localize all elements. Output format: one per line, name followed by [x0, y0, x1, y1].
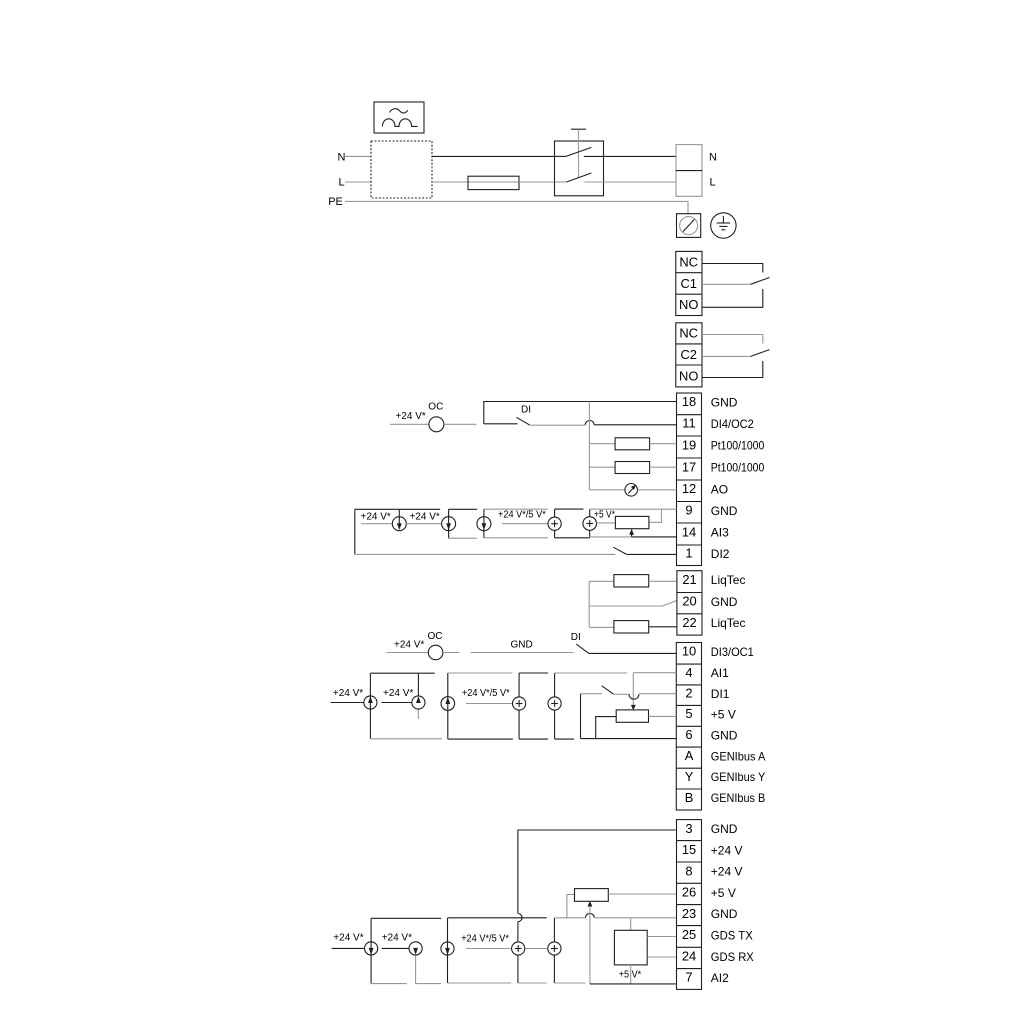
svg-text:10: 10 — [682, 644, 696, 659]
svg-text:9: 9 — [685, 503, 692, 518]
svg-text:PE: PE — [328, 196, 343, 208]
svg-text:Pt100/1000: Pt100/1000 — [711, 439, 765, 453]
svg-text:+24 V*: +24 V* — [361, 512, 391, 523]
svg-text:26: 26 — [682, 885, 696, 900]
svg-text:AI2: AI2 — [711, 971, 729, 985]
svg-text:11: 11 — [682, 416, 695, 431]
svg-text:OC: OC — [428, 631, 443, 642]
svg-text:GDS RX: GDS RX — [711, 950, 754, 964]
svg-text:L: L — [710, 177, 716, 189]
svg-text:AI1: AI1 — [711, 666, 729, 680]
svg-text:N: N — [338, 151, 346, 163]
svg-text:24: 24 — [682, 949, 696, 964]
svg-text:C2: C2 — [680, 347, 696, 362]
svg-text:GDS TX: GDS TX — [711, 929, 753, 943]
svg-text:18: 18 — [682, 394, 696, 409]
svg-text:NC: NC — [679, 254, 698, 269]
svg-text:GENIbus B: GENIbus B — [711, 791, 766, 805]
svg-text:1: 1 — [685, 546, 692, 561]
svg-text:+5 V*: +5 V* — [619, 970, 642, 981]
svg-text:GND: GND — [711, 504, 738, 518]
svg-text:+24 V*/5 V*: +24 V*/5 V* — [462, 688, 510, 699]
svg-text:19: 19 — [682, 437, 696, 452]
svg-text:+24 V*: +24 V* — [396, 411, 426, 422]
svg-text:25: 25 — [682, 927, 696, 942]
svg-text:GENIbus A: GENIbus A — [711, 749, 766, 763]
svg-text:+24 V: +24 V — [711, 843, 743, 857]
svg-text:+24 V*/5 V*: +24 V*/5 V* — [461, 933, 509, 944]
svg-text:NC: NC — [679, 326, 698, 341]
svg-text:B: B — [685, 790, 694, 805]
svg-text:23: 23 — [682, 906, 696, 921]
svg-text:GND: GND — [711, 396, 738, 410]
svg-text:+24 V: +24 V — [711, 865, 743, 879]
svg-text:AI3: AI3 — [711, 526, 729, 540]
svg-text:8: 8 — [685, 863, 692, 878]
svg-text:GND: GND — [711, 595, 738, 609]
svg-text:6: 6 — [685, 727, 692, 742]
svg-text:+24 V*: +24 V* — [410, 512, 440, 523]
svg-text:GND: GND — [711, 822, 738, 836]
svg-text:15: 15 — [682, 842, 696, 857]
svg-text:4: 4 — [685, 665, 692, 680]
svg-text:+24 V*: +24 V* — [382, 932, 412, 943]
svg-text:14: 14 — [682, 524, 696, 539]
svg-text:A: A — [685, 748, 694, 763]
svg-text:+5 V: +5 V — [711, 886, 736, 900]
svg-text:LiqTec: LiqTec — [711, 616, 746, 630]
svg-text:2: 2 — [685, 686, 692, 701]
svg-text:+24 V*: +24 V* — [333, 932, 363, 943]
svg-text:DI: DI — [571, 632, 581, 643]
svg-text:+24 V*: +24 V* — [394, 639, 424, 650]
svg-text:NO: NO — [679, 297, 698, 312]
svg-text:N: N — [709, 151, 717, 163]
svg-text:NO: NO — [679, 369, 698, 384]
svg-text:5: 5 — [685, 706, 692, 721]
svg-text:AO: AO — [711, 482, 728, 496]
svg-text:C1: C1 — [680, 276, 696, 291]
svg-text:LiqTec: LiqTec — [711, 573, 746, 587]
svg-text:3: 3 — [685, 821, 692, 836]
svg-text:Pt100/1000: Pt100/1000 — [711, 461, 765, 475]
svg-text:GND: GND — [711, 907, 738, 921]
svg-text:12: 12 — [682, 481, 696, 496]
svg-text:20: 20 — [682, 594, 696, 609]
svg-text:DI: DI — [521, 405, 531, 416]
svg-text:+24 V*/5 V*: +24 V*/5 V* — [498, 510, 546, 521]
svg-text:GND: GND — [511, 639, 533, 650]
svg-text:7: 7 — [685, 970, 692, 985]
svg-text:Y: Y — [685, 769, 694, 784]
svg-text:GND: GND — [711, 728, 738, 742]
svg-text:+24 V*: +24 V* — [383, 688, 413, 699]
svg-text:22: 22 — [682, 615, 696, 630]
svg-text:OC: OC — [428, 402, 443, 413]
svg-text:DI4/OC2: DI4/OC2 — [711, 417, 754, 431]
svg-text:+5 V: +5 V — [711, 708, 736, 722]
svg-text:DI2: DI2 — [711, 547, 730, 561]
svg-text:+5 V*: +5 V* — [594, 509, 615, 520]
svg-text:21: 21 — [682, 572, 696, 587]
svg-text:L: L — [339, 176, 345, 188]
svg-text:GENIbus Y: GENIbus Y — [711, 770, 766, 784]
svg-text:+24 V*: +24 V* — [333, 688, 363, 699]
svg-text:17: 17 — [682, 459, 696, 474]
svg-text:DI1: DI1 — [711, 687, 730, 701]
svg-text:DI3/OC1: DI3/OC1 — [711, 645, 754, 659]
